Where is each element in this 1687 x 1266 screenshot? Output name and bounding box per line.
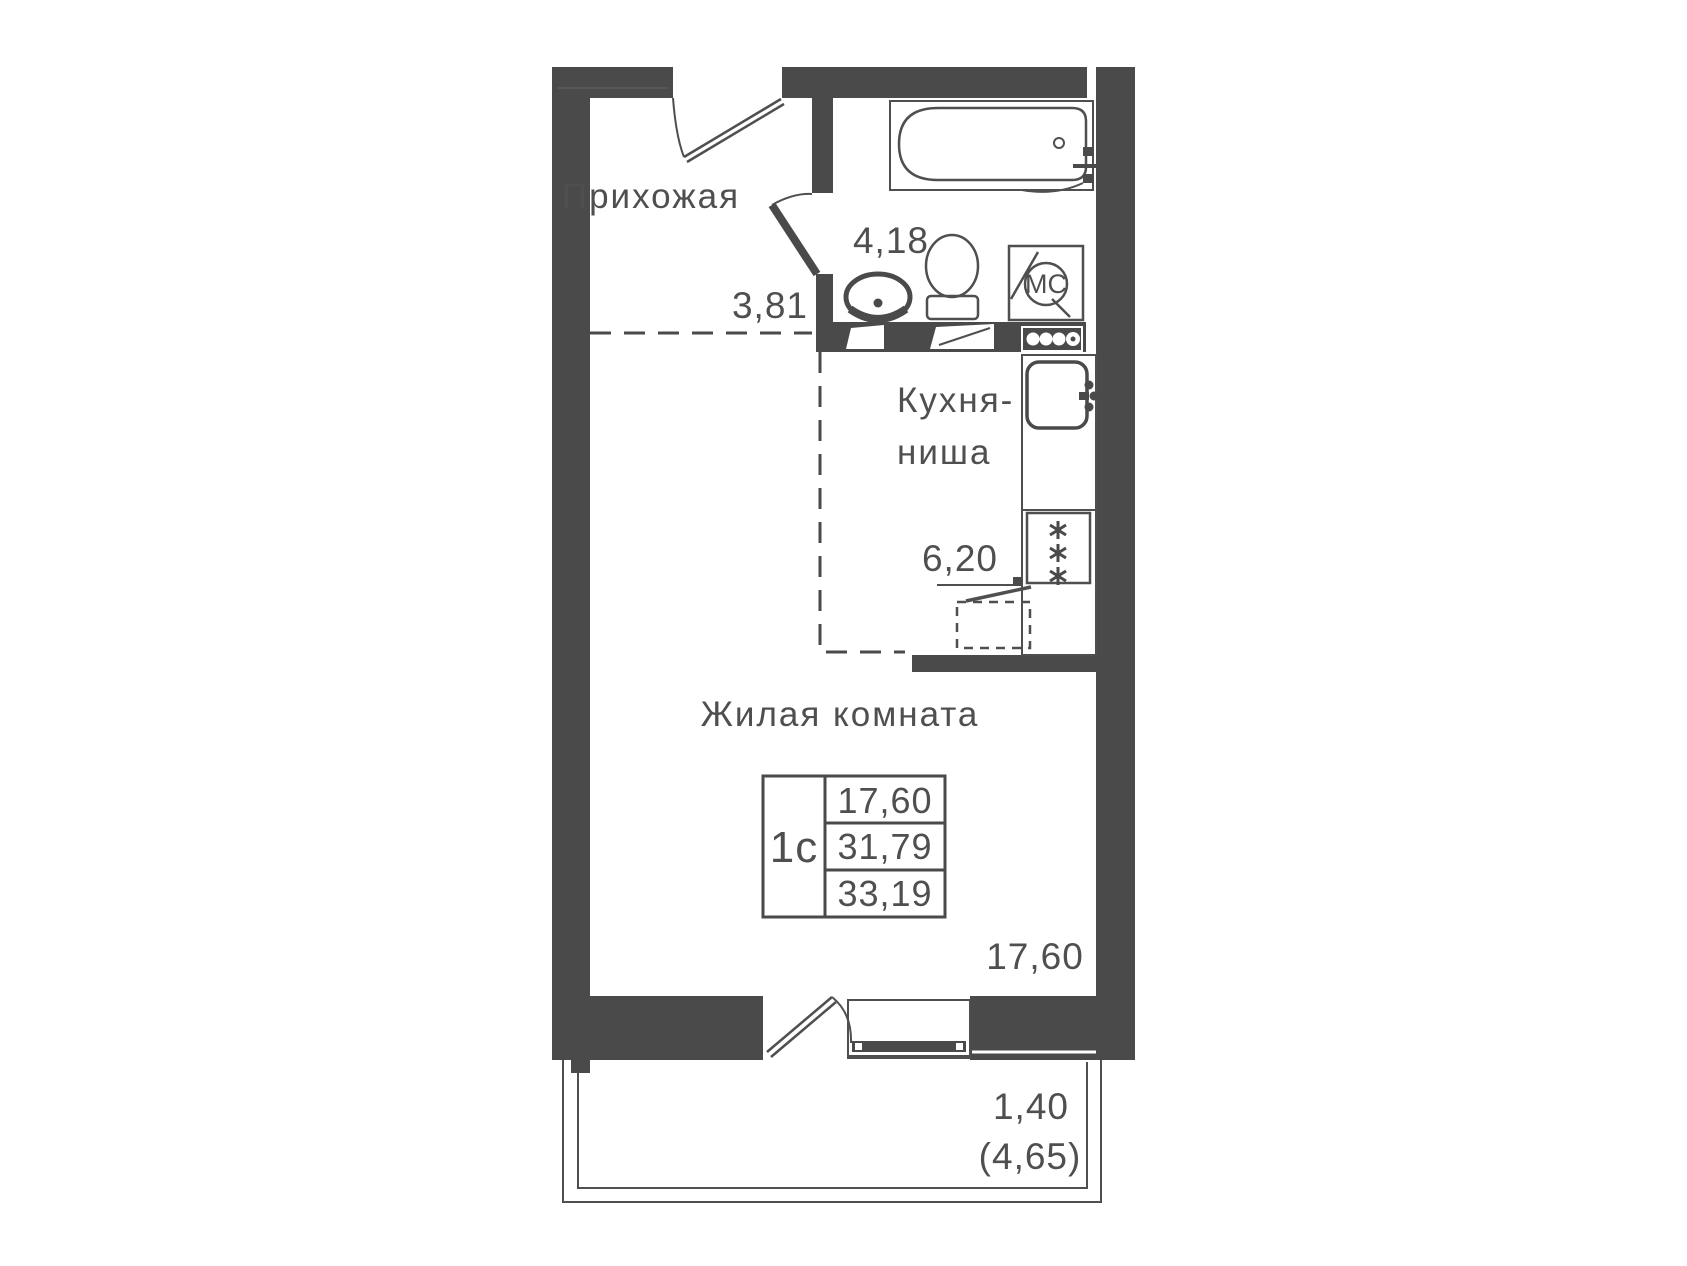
bathtub-faucet bbox=[1083, 174, 1094, 183]
kitchen-label-line1: Кухня- bbox=[897, 381, 1014, 420]
balcony-door-leaf bbox=[767, 997, 832, 1052]
door-swing-arc bbox=[772, 194, 812, 205]
balcony-outline bbox=[563, 1060, 1101, 1202]
entrance-door-icon bbox=[673, 98, 784, 162]
zone-dashed-lines bbox=[590, 333, 905, 652]
door-swing-arc bbox=[673, 98, 684, 157]
window-frame-mark bbox=[855, 1043, 862, 1050]
kitchen-sink-icon bbox=[1027, 362, 1087, 428]
wall-bottom-stub bbox=[571, 1060, 590, 1073]
vent-hole bbox=[1053, 333, 1066, 346]
toilet-tank bbox=[927, 296, 978, 319]
duct-inset bbox=[846, 325, 884, 349]
unit-area-row3: 33,19 bbox=[837, 873, 932, 914]
window-frame-icon bbox=[852, 1041, 966, 1052]
wall-top-right bbox=[782, 67, 1087, 98]
bathtub-faucet bbox=[1083, 147, 1094, 156]
wall-bathroom-left-upper bbox=[812, 98, 833, 193]
hallway-area: 3,81 bbox=[732, 285, 808, 326]
unit-area-row1: 17,60 bbox=[837, 780, 932, 821]
bathroom-door-leaf bbox=[772, 205, 817, 274]
toilet-icon bbox=[926, 235, 978, 297]
balcony-width: 1,40 bbox=[993, 1086, 1069, 1127]
bathtub-drain bbox=[1054, 138, 1064, 148]
wall-kitchen-living bbox=[912, 655, 1096, 672]
living-room-area: 17,60 bbox=[986, 936, 1084, 977]
wall-bottom-right bbox=[970, 996, 1135, 1060]
counter-end-cap bbox=[1013, 577, 1022, 586]
fridge-icon bbox=[957, 602, 1030, 648]
wall-bottom-left bbox=[552, 996, 763, 1060]
washing-machine-label: МС bbox=[1025, 269, 1067, 299]
wall-right bbox=[1096, 67, 1135, 1060]
kitchen-label-line2: ниша bbox=[897, 433, 991, 472]
unit-area-row2: 31,79 bbox=[837, 826, 932, 867]
bathroom-area: 4,18 bbox=[853, 220, 929, 261]
balcony-area: (4,65) bbox=[979, 1136, 1082, 1177]
living-room-label: Жилая комната bbox=[701, 695, 980, 734]
washing-machine-mark bbox=[1052, 299, 1070, 317]
info-table: 1с 17,60 31,79 33,19 bbox=[763, 776, 945, 917]
hallway-label: Прихожая bbox=[562, 177, 740, 216]
kitchen-faucet-icon bbox=[1085, 381, 1094, 390]
vent-hole bbox=[1040, 333, 1053, 346]
window-frame-mark bbox=[956, 1043, 963, 1050]
floor-plan: МС bbox=[0, 0, 1687, 1266]
kitchen-zone-line bbox=[820, 352, 905, 652]
door-leaf bbox=[687, 104, 784, 162]
door-leaf bbox=[684, 99, 781, 157]
kitchen-faucet-icon bbox=[1090, 392, 1099, 401]
balcony-door-leaf bbox=[771, 1002, 836, 1057]
bathtub-icon bbox=[899, 108, 1086, 180]
stove-burner-icon bbox=[1050, 521, 1066, 585]
kitchen-faucet-icon bbox=[1085, 403, 1094, 412]
walls bbox=[552, 67, 1135, 1073]
wall-bathroom-left-lower bbox=[816, 274, 833, 324]
vent-hole-dot bbox=[1071, 337, 1076, 342]
wall-duct-details bbox=[846, 324, 1082, 351]
kitchen-faucet-base bbox=[1079, 392, 1089, 400]
balcony-outer-rail bbox=[563, 1060, 1101, 1202]
kitchen-area: 6,20 bbox=[922, 538, 998, 579]
vent-hole bbox=[1027, 333, 1040, 346]
unit-type-label: 1с bbox=[770, 823, 818, 872]
washbasin-drain bbox=[874, 299, 883, 308]
